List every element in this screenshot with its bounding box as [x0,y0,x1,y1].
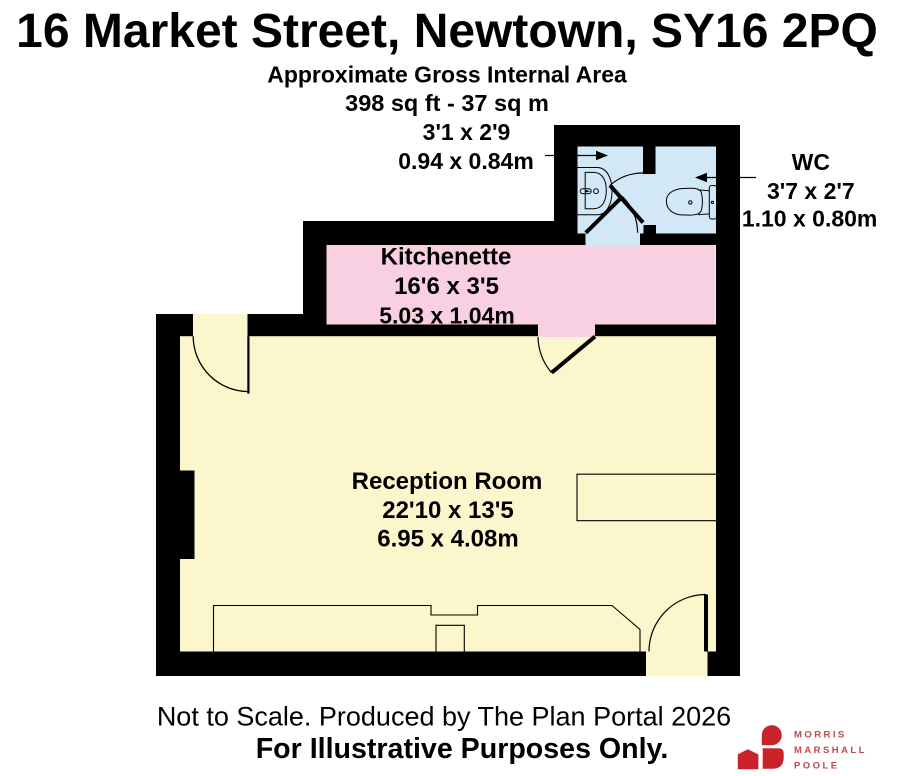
svg-text:Approximate Gross Internal Are: Approximate Gross Internal Area [267,62,627,88]
svg-text:22'10 x 13'5: 22'10 x 13'5 [382,497,514,524]
svg-text:Not to Scale. Produced by The: Not to Scale. Produced by The Plan Porta… [157,702,731,732]
svg-text:Reception Room: Reception Room [352,468,543,495]
svg-text:For Illustrative Purposes Only: For Illustrative Purposes Only. [256,733,669,765]
svg-text:3'1 x 2'9: 3'1 x 2'9 [423,119,511,145]
svg-text:0.94 x 0.84m: 0.94 x 0.84m [398,148,534,174]
svg-text:MARSHALL: MARSHALL [794,745,867,756]
svg-text:6.95 x 4.08m: 6.95 x 4.08m [377,526,518,553]
svg-text:16 Market Street, Newtown, SY1: 16 Market Street, Newtown, SY16 2PQ [16,5,878,58]
svg-text:5.03 x 1.04m: 5.03 x 1.04m [379,303,515,329]
svg-text:MORRIS: MORRIS [794,730,847,741]
svg-text:3'7 x 2'7: 3'7 x 2'7 [767,178,855,204]
svg-text:16'6 x 3'5: 16'6 x 3'5 [394,273,499,300]
svg-text:398 sq ft - 37 sq m: 398 sq ft - 37 sq m [345,90,549,116]
svg-text:Kitchenette: Kitchenette [381,244,512,271]
svg-text:1.10 x 0.80m: 1.10 x 0.80m [742,206,878,232]
svg-text:WC: WC [792,149,830,175]
svg-text:POOLE: POOLE [794,761,840,772]
